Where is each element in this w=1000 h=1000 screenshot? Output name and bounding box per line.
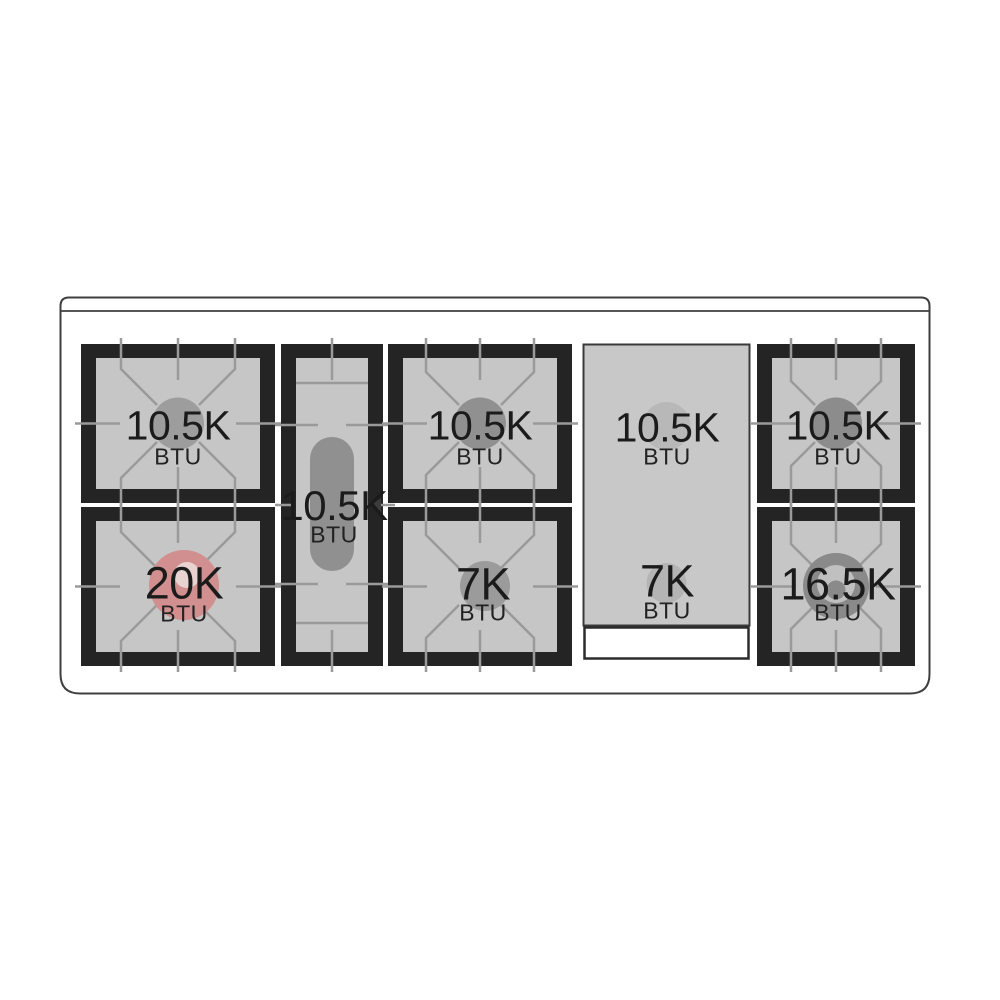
griddle-handle bbox=[585, 628, 749, 659]
burner-unit: BTU bbox=[814, 602, 862, 625]
burner-unit: BTU bbox=[456, 446, 504, 469]
cooktop-graphic bbox=[0, 0, 1000, 1000]
burner-unit: BTU bbox=[459, 602, 507, 625]
burner-unit: BTU bbox=[643, 600, 691, 623]
burner-unit: BTU bbox=[643, 446, 691, 469]
burner-unit: BTU bbox=[160, 603, 208, 626]
burner-value: 10.5K bbox=[615, 408, 720, 449]
cooktop-diagram: 10.5K BTU 20K BTU 10.5K BTU 10.5K BTU 7K… bbox=[0, 0, 1000, 1000]
burner-unit: BTU bbox=[154, 446, 202, 469]
burner-unit: BTU bbox=[310, 524, 358, 547]
burner-unit: BTU bbox=[814, 446, 862, 469]
burner-value: 10.5K bbox=[126, 406, 231, 447]
burner-value: 20K bbox=[145, 561, 224, 606]
burner-value: 10.5K bbox=[786, 406, 891, 447]
burner-value: 10.5K bbox=[428, 406, 533, 447]
